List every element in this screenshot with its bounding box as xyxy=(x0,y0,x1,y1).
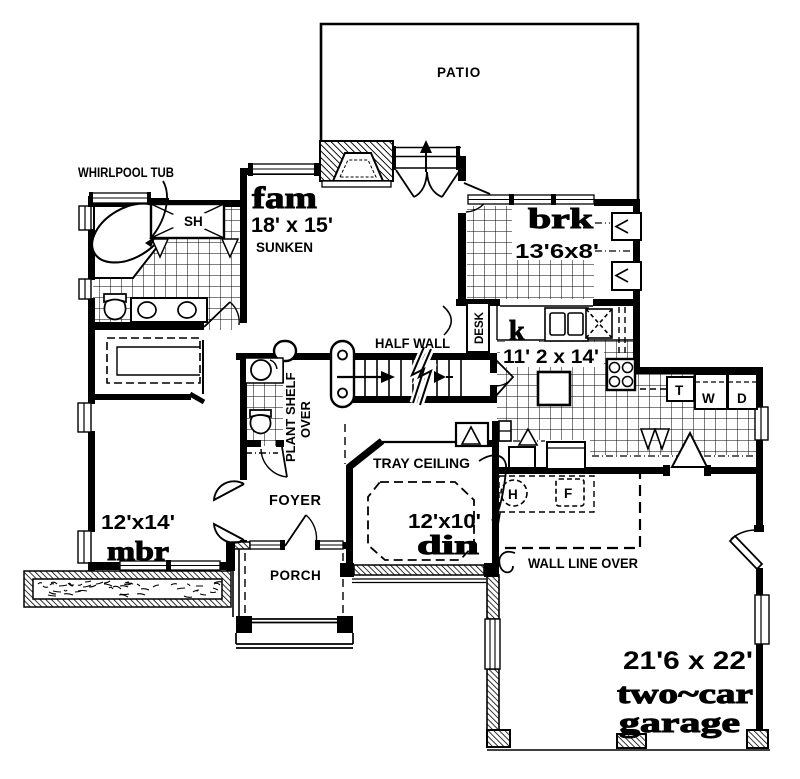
svg-text:W: W xyxy=(702,391,715,406)
svg-text:D: D xyxy=(737,391,747,406)
svg-text:garage: garage xyxy=(619,707,740,739)
svg-text:T: T xyxy=(675,383,684,398)
svg-text:two~car: two~car xyxy=(617,678,753,710)
svg-text:18' x 15': 18' x 15' xyxy=(251,214,333,237)
svg-text:HALF WALL: HALF WALL xyxy=(375,335,450,351)
svg-text:PATIO: PATIO xyxy=(437,65,481,80)
svg-text:k: k xyxy=(509,316,525,347)
svg-text:F: F xyxy=(564,486,572,501)
svg-text:fam: fam xyxy=(252,180,317,215)
svg-text:WHIRLPOOL TUB: WHIRLPOOL TUB xyxy=(78,165,174,180)
svg-text:brk: brk xyxy=(528,204,594,235)
svg-text:FOYER: FOYER xyxy=(269,493,321,509)
svg-text:PLANT SHELF: PLANT SHELF xyxy=(283,372,298,462)
svg-text:21'6 x 22': 21'6 x 22' xyxy=(623,647,753,675)
svg-text:SH: SH xyxy=(184,214,203,229)
svg-text:H: H xyxy=(508,487,518,502)
svg-text:12'x14': 12'x14' xyxy=(101,512,175,534)
svg-text:TRAY CEILING: TRAY CEILING xyxy=(373,455,470,471)
svg-text:SUNKEN: SUNKEN xyxy=(256,240,313,255)
svg-text:PORCH: PORCH xyxy=(270,568,321,583)
svg-text:din: din xyxy=(417,530,479,560)
svg-text:11' 2 x 14': 11' 2 x 14' xyxy=(503,347,599,368)
svg-text:OVER: OVER xyxy=(298,401,313,438)
svg-text:DESK: DESK xyxy=(474,311,486,344)
svg-text:WALL LINE OVER: WALL LINE OVER xyxy=(528,556,638,571)
svg-text:13'6x8': 13'6x8' xyxy=(515,241,599,263)
svg-text:mbr: mbr xyxy=(107,536,169,566)
